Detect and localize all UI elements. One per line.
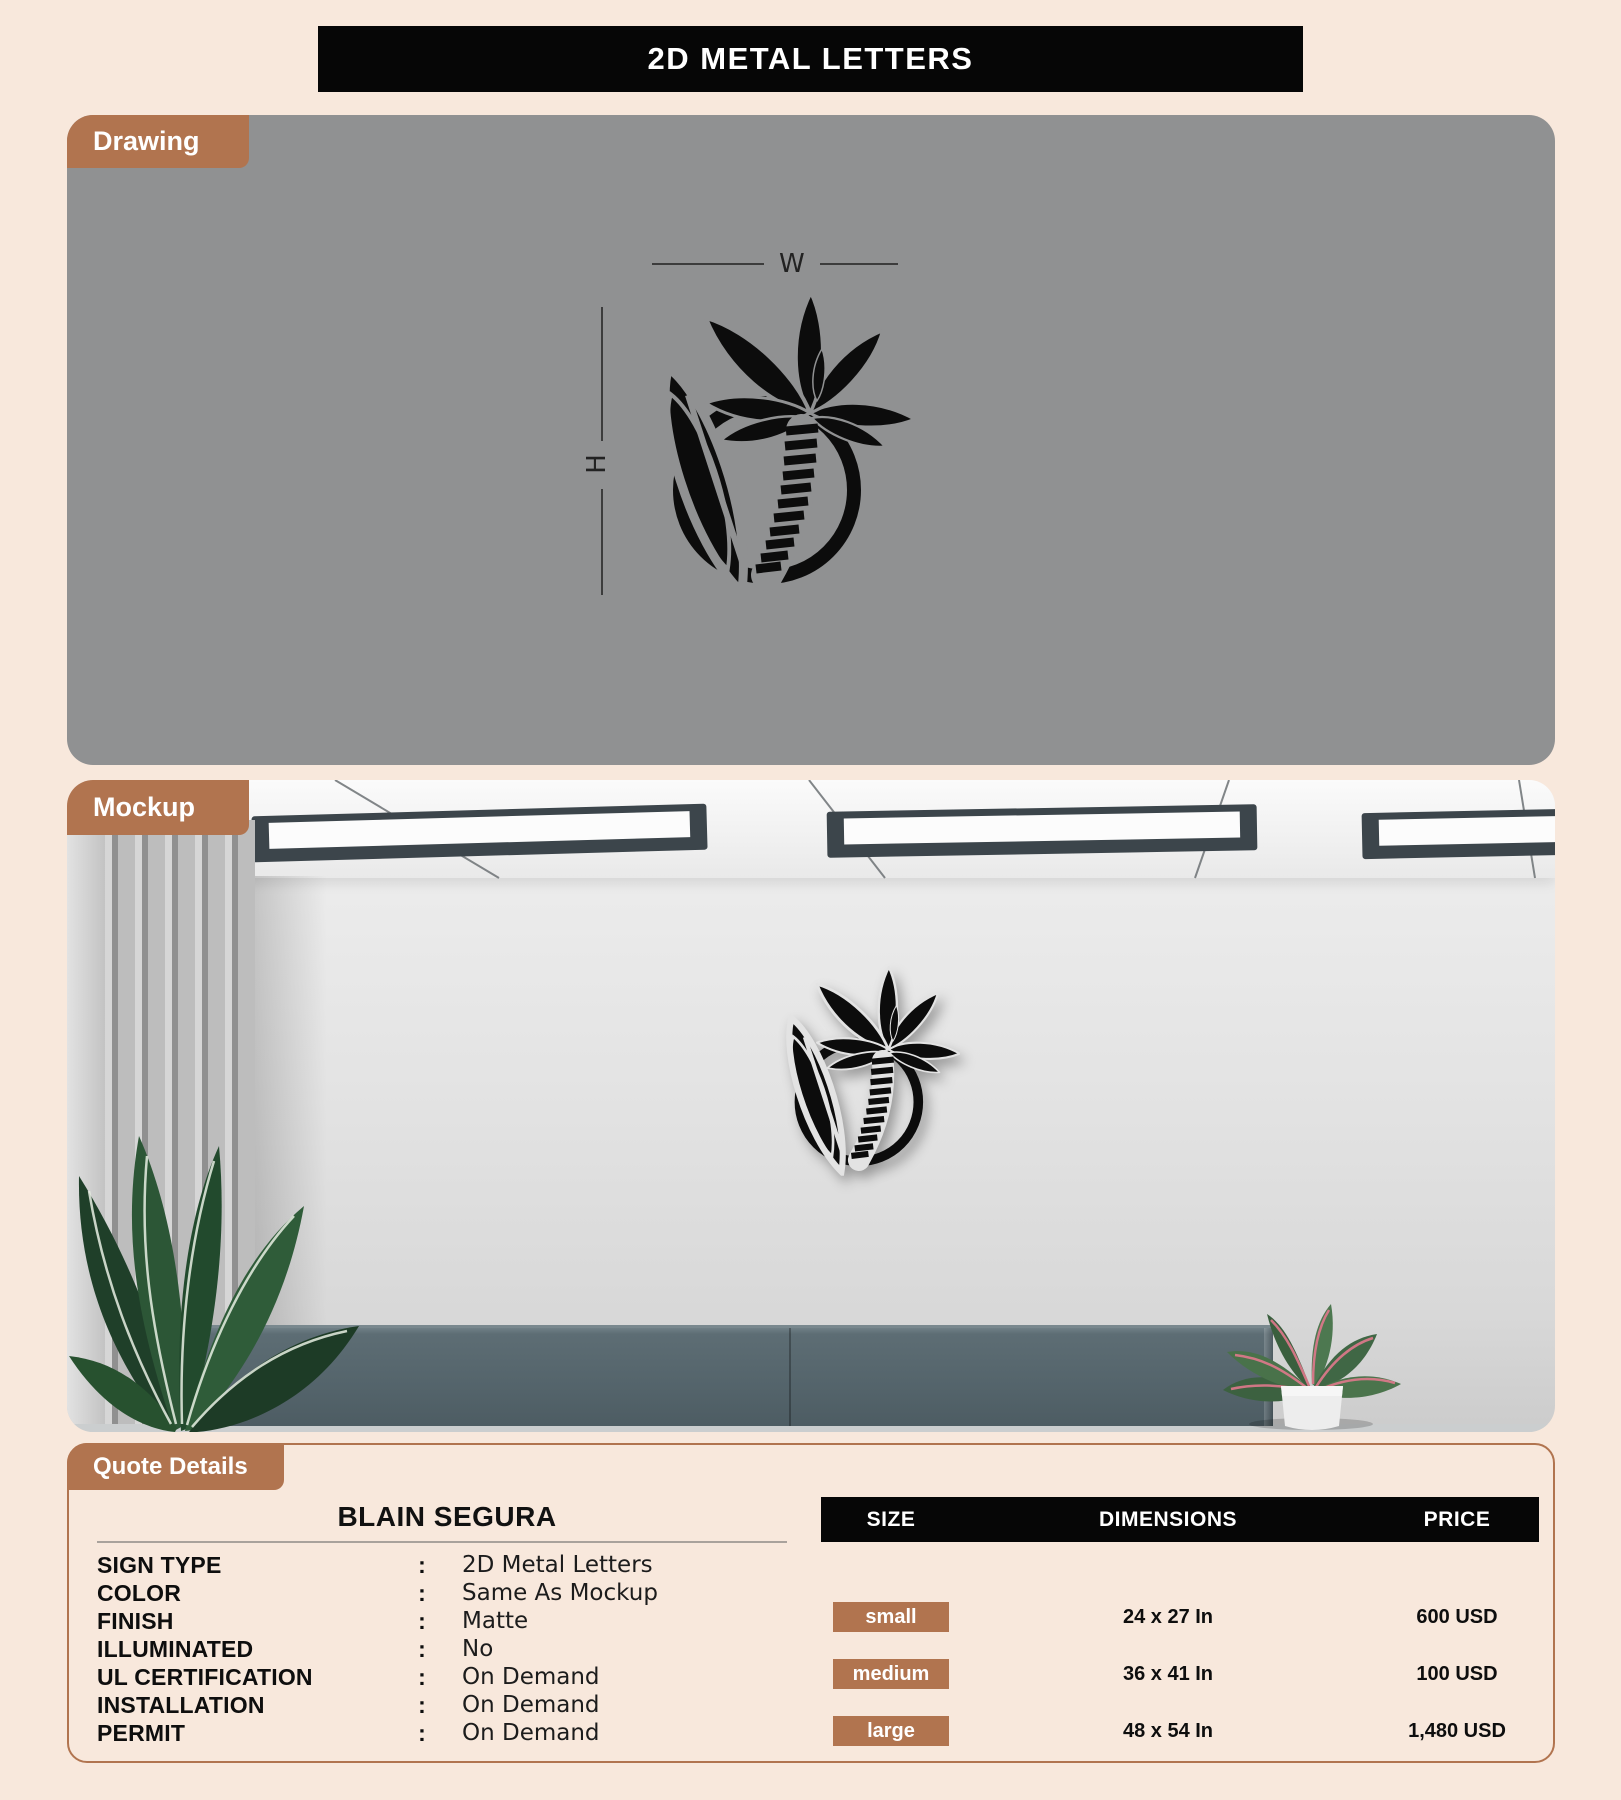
quote-details-section: Quote Details BLAIN SEGURA SIGN TYPE : 2… [67,1443,1555,1763]
spec-list: SIGN TYPE : 2D Metal Letters COLOR : Sam… [97,1551,797,1747]
spec-value: Same As Mockup [462,1580,797,1606]
height-dim-line-top [601,307,603,441]
dimensions-cell: 48 x 54 In [961,1720,1375,1743]
dimensions-cell: 24 x 27 In [961,1606,1375,1629]
width-dim-line-left [652,263,764,265]
spec-value: 2D Metal Letters [462,1552,797,1578]
dimensions-cell: 36 x 41 In [961,1663,1375,1686]
spec-colon: : [382,1720,462,1747]
price-table-row: medium 36 x 41 In 100 USD [821,1659,1539,1689]
spec-label: SIGN TYPE [97,1552,382,1579]
price-table-row: large 48 x 54 In 1,480 USD [821,1716,1539,1746]
spec-row: SIGN TYPE : 2D Metal Letters [97,1551,797,1579]
palm-surfboard-logo [615,268,915,598]
price-cell: 100 USD [1375,1663,1539,1686]
spec-row: FINISH : Matte [97,1607,797,1635]
spec-value: On Demand [462,1664,797,1690]
mockup-section-tab: Mockup [67,780,249,835]
spec-label: COLOR [97,1580,382,1607]
spec-colon: : [382,1580,462,1607]
spec-colon: : [382,1664,462,1691]
spec-label: ILLUMINATED [97,1636,382,1663]
spec-row: INSTALLATION : On Demand [97,1691,797,1719]
quote-details-tab: Quote Details [67,1443,284,1490]
col-header-size: SIZE [821,1508,961,1532]
col-header-price: PRICE [1375,1508,1539,1532]
quote-sheet-page: 2D METAL LETTERS Drawing W H [0,0,1621,1800]
cabinet-door-seam [789,1328,791,1426]
price-table-header: SIZE DIMENSIONS PRICE [821,1497,1539,1542]
price-cell: 600 USD [1375,1606,1539,1629]
price-table-row: small 24 x 27 In 600 USD [821,1602,1539,1632]
spec-colon: : [382,1608,462,1635]
size-badge: medium [833,1659,949,1689]
mockup-room-scene [67,780,1555,1432]
price-cell: 1,480 USD [1375,1720,1539,1743]
mockup-section: Mockup [67,780,1555,1432]
spec-value: On Demand [462,1720,797,1746]
large-plant [67,1026,389,1432]
spec-label: FINISH [97,1608,382,1635]
palm-surfboard-logo-wall-sign [755,950,960,1176]
width-dim-line-right [820,263,898,265]
spec-label: PERMIT [97,1720,382,1747]
spec-colon: : [382,1692,462,1719]
spec-value: No [462,1636,797,1662]
spec-row: PERMIT : On Demand [97,1719,797,1747]
spec-row: COLOR : Same As Mockup [97,1579,797,1607]
customer-divider [97,1541,787,1543]
height-dim-label: H [582,454,612,474]
height-dim-line-bottom [601,489,603,595]
spec-label: UL CERTIFICATION [97,1664,382,1691]
col-header-dimensions: DIMENSIONS [961,1508,1375,1532]
drawing-section-tab: Drawing [67,115,249,168]
size-badge: small [833,1602,949,1632]
spec-value: On Demand [462,1692,797,1718]
spec-colon: : [382,1636,462,1663]
size-badge: large [833,1716,949,1746]
spec-colon: : [382,1552,462,1579]
spec-row: ILLUMINATED : No [97,1635,797,1663]
drawing-section: Drawing W H [67,115,1555,765]
spec-label: INSTALLATION [97,1692,382,1719]
spec-value: Matte [462,1608,797,1634]
page-title: 2D METAL LETTERS [318,26,1303,92]
potted-plant [1205,1278,1420,1430]
customer-name: BLAIN SEGURA [97,1501,797,1533]
spec-row: UL CERTIFICATION : On Demand [97,1663,797,1691]
light-fixture [251,804,1555,863]
price-table: SIZE DIMENSIONS PRICE small 24 x 27 In 6… [821,1497,1539,1542]
